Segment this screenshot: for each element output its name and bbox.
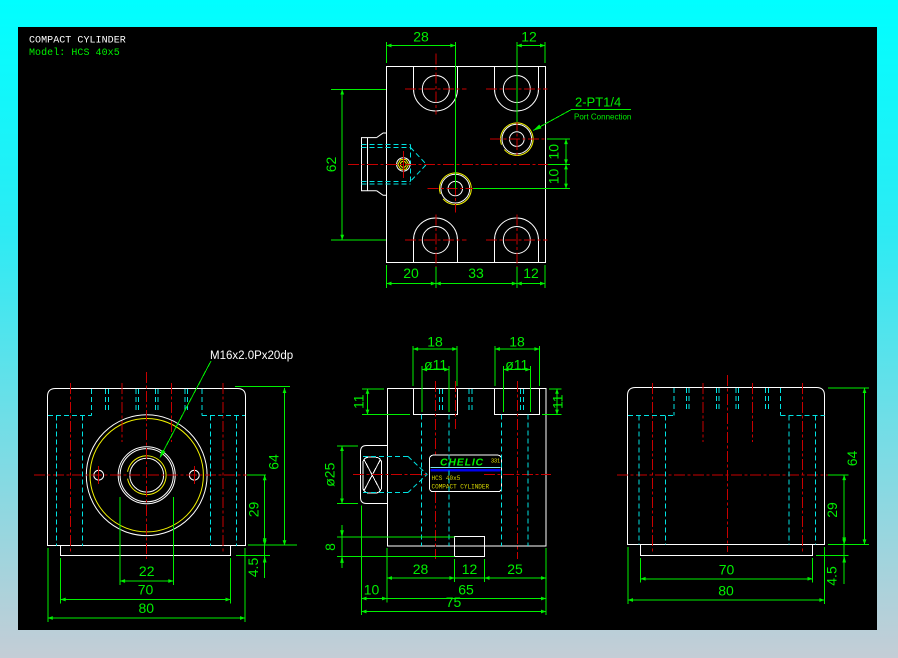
svg-text:33: 33 [468, 265, 484, 281]
svg-text:80: 80 [139, 600, 155, 616]
svg-text:ø25: ø25 [322, 462, 338, 486]
svg-text:28: 28 [413, 561, 429, 577]
svg-text:11: 11 [550, 394, 566, 409]
svg-text:10: 10 [546, 169, 562, 185]
svg-text:CHELIC: CHELIC [440, 457, 484, 469]
svg-text:80: 80 [718, 583, 734, 599]
svg-text:70: 70 [138, 582, 154, 598]
svg-text:12: 12 [521, 29, 537, 45]
svg-text:29: 29 [824, 502, 840, 518]
svg-text:Model: HCS 40x5: Model: HCS 40x5 [29, 47, 120, 59]
svg-text:10: 10 [546, 144, 562, 160]
svg-text:20: 20 [403, 265, 419, 281]
svg-text:8: 8 [322, 543, 338, 551]
svg-text:64: 64 [266, 454, 282, 470]
svg-text:12: 12 [462, 561, 478, 577]
svg-text:64: 64 [844, 451, 860, 467]
svg-text:11: 11 [351, 394, 367, 409]
svg-text:29: 29 [246, 502, 262, 518]
svg-text:HCS 40x5: HCS 40x5 [432, 475, 461, 482]
svg-text:4.5: 4.5 [824, 566, 840, 586]
svg-text:4.5: 4.5 [245, 558, 261, 578]
svg-text:25: 25 [507, 561, 523, 577]
svg-text:18: 18 [509, 334, 525, 350]
svg-text:22: 22 [139, 563, 155, 579]
svg-text:28: 28 [413, 29, 429, 45]
svg-text:ø11: ø11 [424, 357, 447, 373]
svg-text:ø11: ø11 [505, 357, 528, 373]
svg-text:2-PT1/4: 2-PT1/4 [575, 95, 621, 110]
svg-text:M16x2.0Px20dp: M16x2.0Px20dp [210, 350, 293, 362]
svg-text:70: 70 [719, 562, 735, 578]
svg-text:331: 331 [491, 459, 500, 465]
svg-text:COMPACT CYLINDER: COMPACT CYLINDER [432, 484, 490, 491]
svg-text:10: 10 [364, 582, 380, 598]
svg-text:12: 12 [523, 265, 539, 281]
svg-text:COMPACT CYLINDER: COMPACT CYLINDER [29, 36, 126, 47]
svg-text:Port Connection: Port Connection [574, 113, 631, 122]
svg-text:18: 18 [427, 334, 443, 350]
svg-text:62: 62 [323, 157, 339, 173]
svg-text:75: 75 [446, 594, 462, 610]
